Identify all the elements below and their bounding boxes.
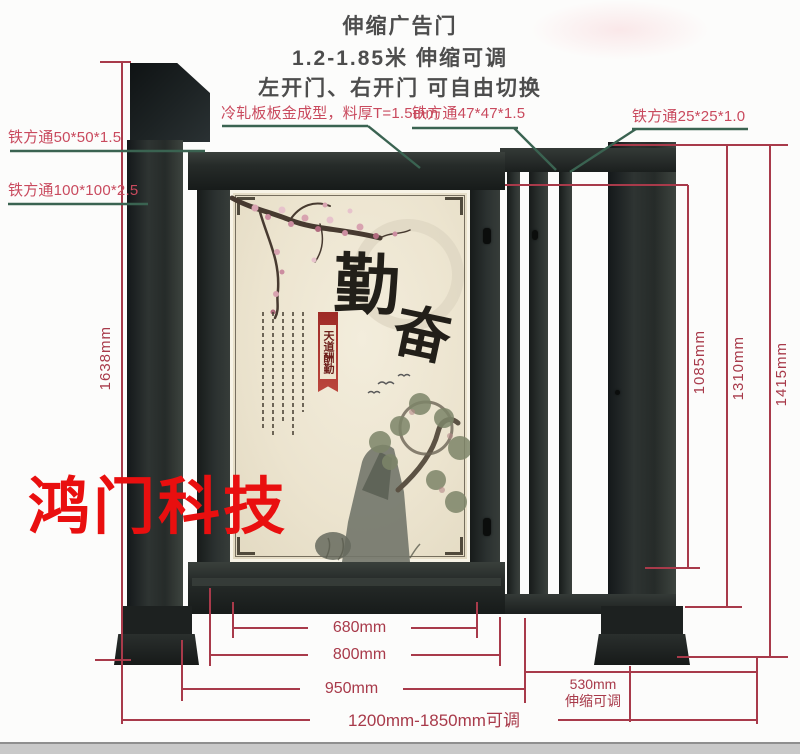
seal-banner-text: 天道酬勤	[320, 325, 336, 379]
door-top-rail	[188, 152, 505, 190]
dim-poster-width: 680mm	[308, 619, 411, 637]
callout-tube-25: 铁方通25*25*1.0	[632, 105, 745, 126]
callout-tube-100: 铁方通100*100*2.5	[8, 179, 138, 200]
poster-corner-ornament	[237, 197, 255, 215]
dim-mid-height: 1310mm	[730, 336, 747, 400]
door-lock	[483, 518, 491, 536]
poster-corner-ornament	[445, 197, 463, 215]
dim-left-height: 1638mm	[97, 326, 114, 390]
poem-columns	[262, 312, 314, 440]
dim-telescopic-note: 伸缩可调	[538, 693, 648, 710]
callout-cold-rolled: 冷轧板板金成型，料厚T=1.5mm	[221, 102, 438, 123]
post-screw	[615, 390, 620, 395]
fence-picket	[559, 172, 572, 594]
product-title: 伸缩广告门	[160, 10, 640, 40]
dim-outer-height: 1415mm	[773, 342, 790, 406]
watermark-text: 鸿门科技	[28, 456, 288, 546]
dim-overall-range: 1200mm-1850mm可调	[310, 711, 558, 730]
left-foot-cap	[121, 606, 192, 634]
product-note: 左开门、右开门 可自由切换	[160, 72, 640, 102]
image-bottom-band	[0, 742, 800, 754]
dim-telescopic: 530mm 伸缩可调	[538, 676, 648, 710]
door-bottom-rail	[188, 562, 505, 614]
door-right-stile	[470, 190, 500, 562]
dim-frame-width: 950mm	[300, 680, 403, 698]
door-bottom-rail-highlight	[192, 578, 501, 586]
callout-tube-47: 铁方通47*47*1.5	[412, 102, 525, 123]
right-foot-base	[594, 634, 690, 665]
fence-picket	[507, 172, 520, 594]
callout-tube-50: 铁方通50*50*1.5	[8, 126, 121, 147]
advertising-gate-diagram: 天道酬勤 勤 奋	[0, 0, 800, 754]
leaf-roller	[532, 230, 538, 240]
dim-telescopic-value: 530mm	[538, 676, 648, 693]
right-foot-cap	[601, 606, 683, 634]
right-post	[608, 142, 676, 610]
dim-inner-height: 1085mm	[691, 330, 708, 394]
product-range: 1.2-1.85米 伸缩可调	[160, 42, 640, 72]
door-hinge	[483, 228, 491, 244]
left-foot-base	[114, 634, 199, 665]
poster-corner-ornament	[445, 537, 463, 555]
dim-door-width: 800mm	[308, 646, 411, 664]
calligraphy-char-qin: 勤	[332, 231, 401, 329]
fence-top-rail	[500, 148, 676, 172]
